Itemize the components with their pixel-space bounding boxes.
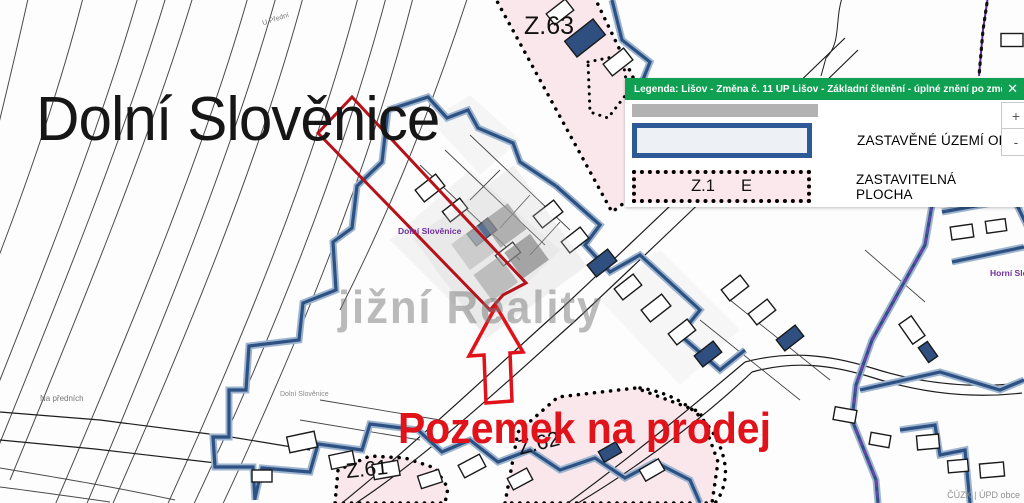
legend-partial-item xyxy=(632,104,818,117)
swatch-zone-code: Z.1 xyxy=(691,177,715,196)
legend-header: Legenda: Lišov - Změna č. 11 ÚP Lišov - … xyxy=(625,78,1024,100)
zoom-out-button[interactable]: - xyxy=(1001,129,1024,156)
legend-panel: Legenda: Lišov - Změna č. 11 ÚP Lišov - … xyxy=(625,78,1024,207)
legend-title: Legenda: Lišov - Změna č. 11 ÚP Lišov - … xyxy=(634,84,1002,95)
legend-item-label: ZASTAVITELNÁ PLOCHA xyxy=(856,172,1016,202)
developable-swatch: Z.1 E xyxy=(632,170,811,203)
close-icon[interactable]: ✕ xyxy=(1007,80,1018,98)
map-canvas[interactable] xyxy=(0,0,1024,503)
legend-item-label: ZASTAVĚNÉ ÚZEMÍ OB xyxy=(857,133,1008,148)
map-screenshot: Dolní Slověnice U Přední Na předních Dol… xyxy=(0,0,1024,503)
swatch-zone-letter: E xyxy=(741,177,752,196)
zoom-in-button[interactable]: + xyxy=(1001,102,1024,129)
legend-body: ZASTAVĚNÉ ÚZEMÍ OB Z.1 E ZASTAVITELNÁ PL… xyxy=(625,100,1024,203)
built-area-swatch xyxy=(632,123,812,158)
legend-item-built-area: ZASTAVĚNÉ ÚZEMÍ OB xyxy=(632,123,1016,158)
zoom-controls: + - xyxy=(1001,102,1024,156)
legend-item-developable: Z.1 E ZASTAVITELNÁ PLOCHA xyxy=(632,170,1016,203)
